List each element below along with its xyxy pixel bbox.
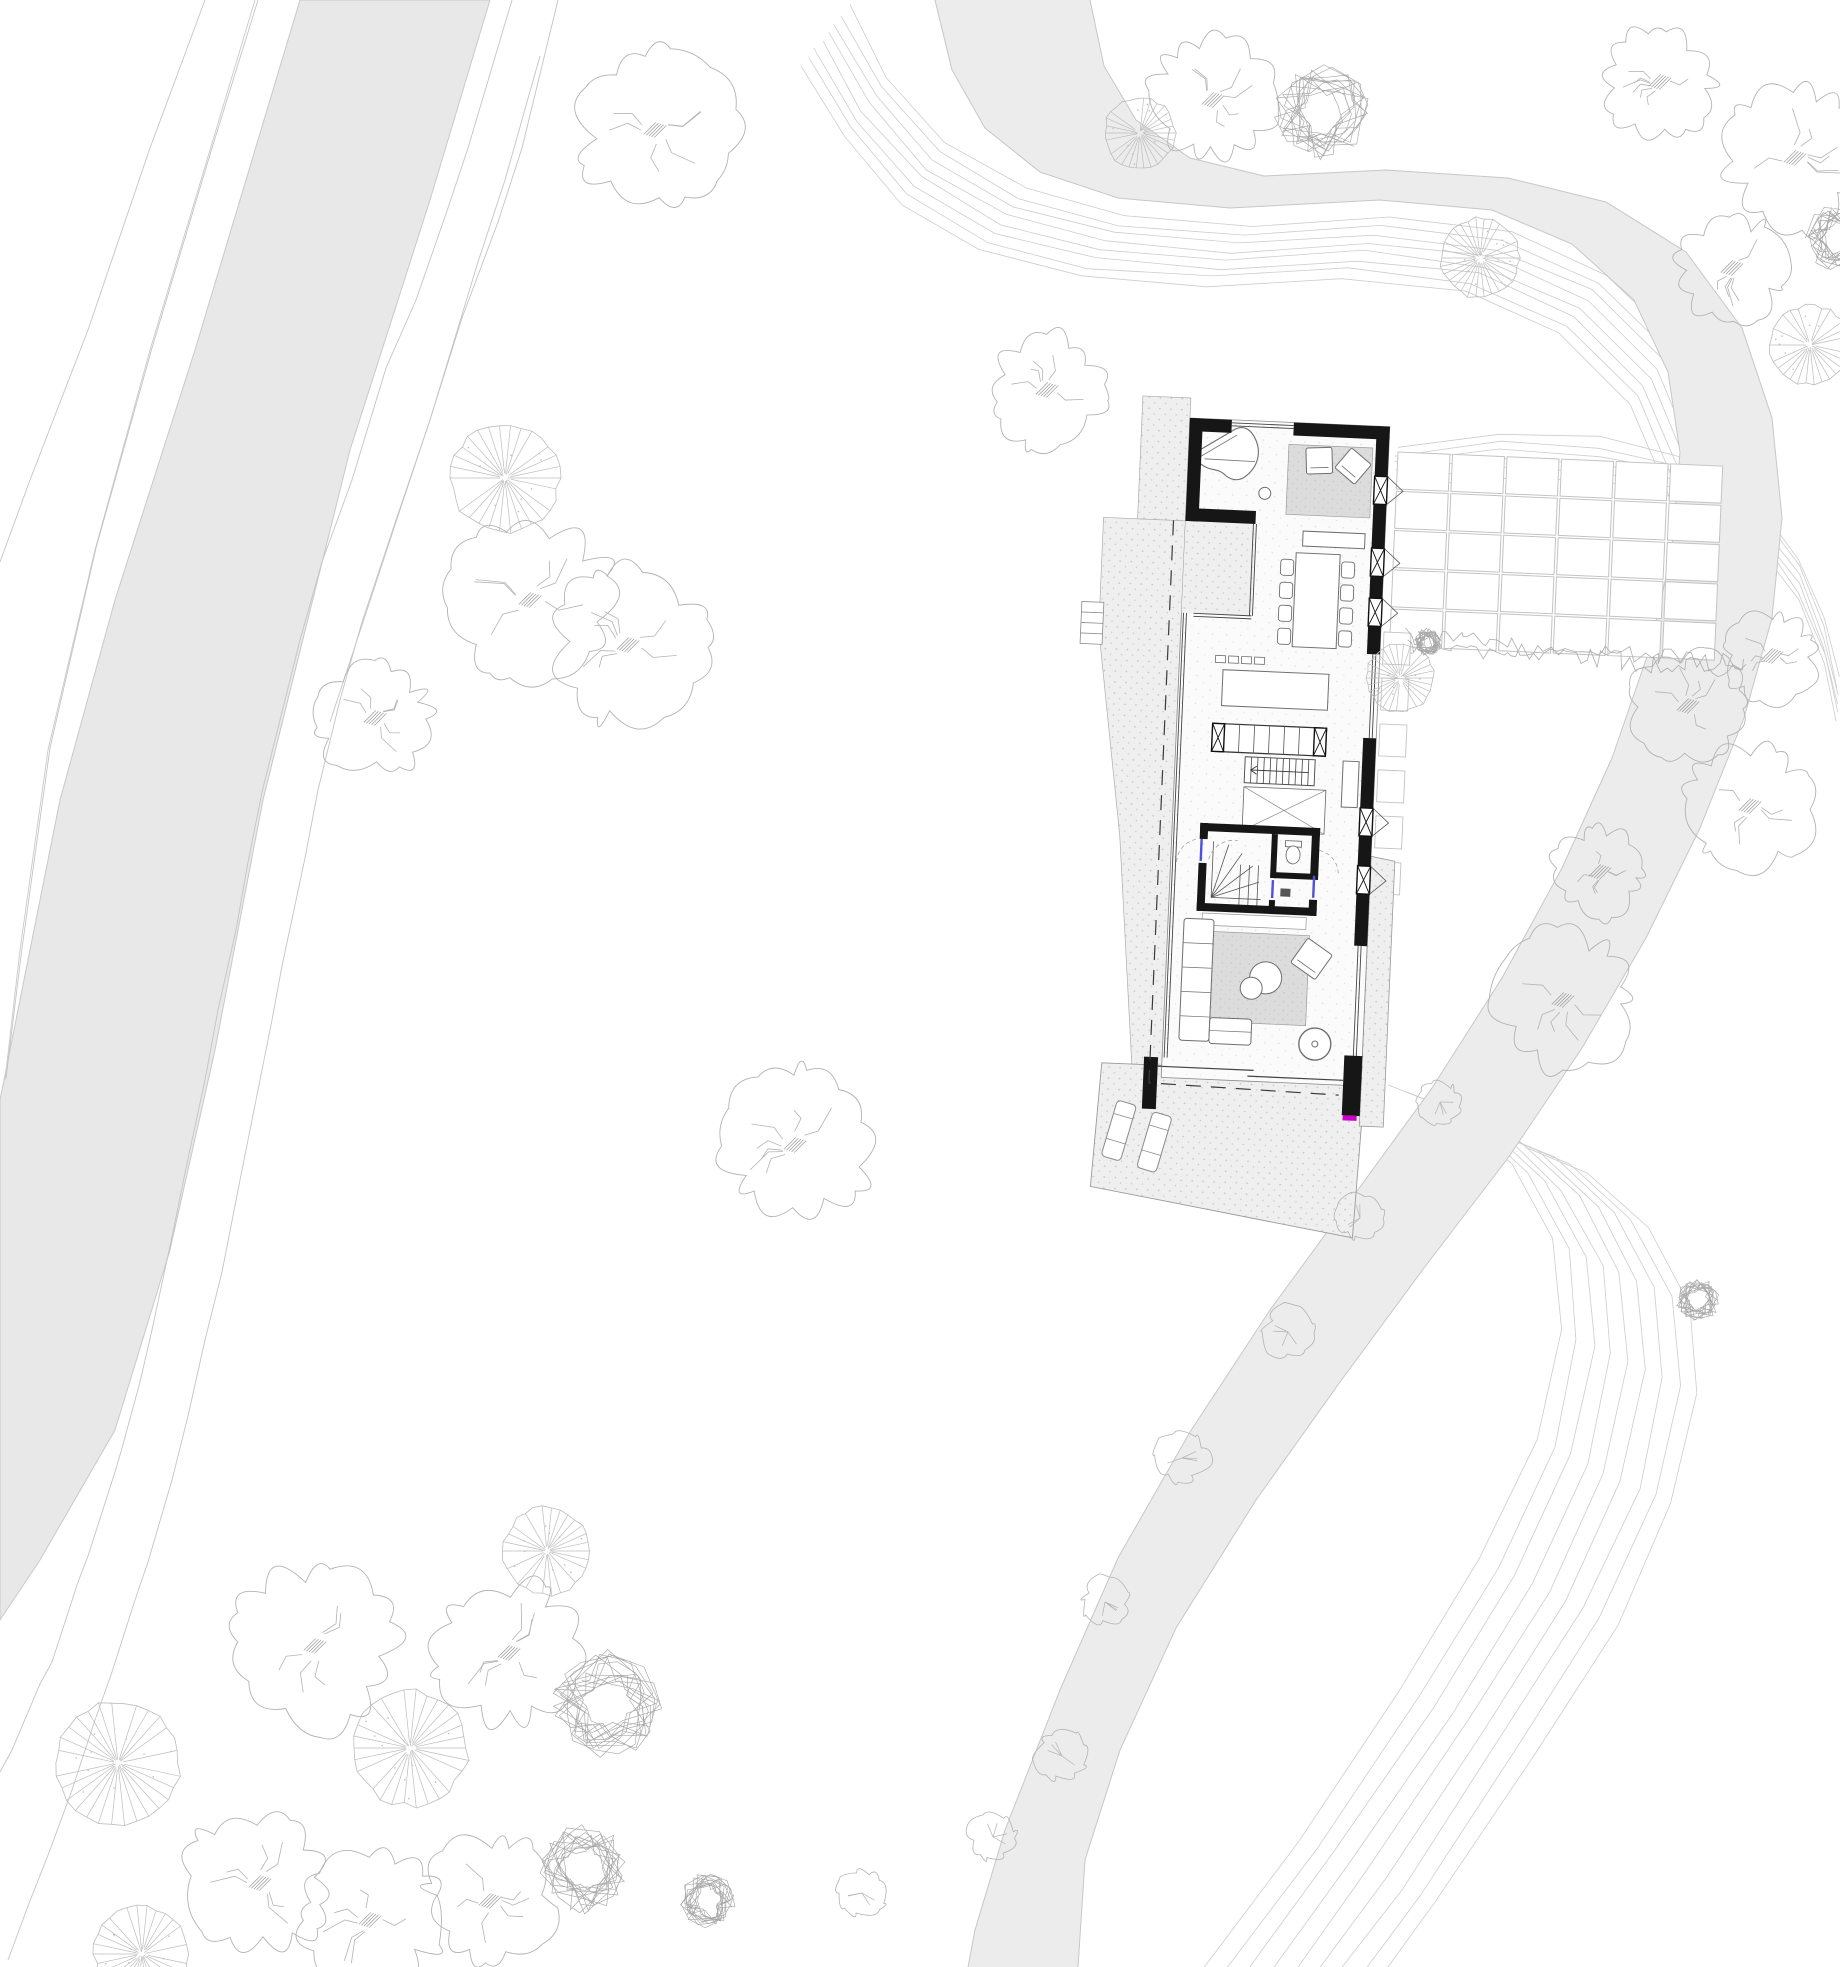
tree-branch [583,651,615,667]
tree-dot [404,1779,406,1781]
tree-dot [1464,259,1466,261]
kitchen-island [1221,670,1328,711]
paver-slab [1449,494,1503,533]
tree-branch [1031,369,1041,382]
tree-small [836,1869,887,1917]
dining-chair [1340,585,1354,602]
tree-canopy [1275,65,1367,158]
tree-dot [494,505,496,507]
paver-slab [1560,459,1614,498]
tree-branch [519,1662,537,1678]
tree-branch [261,1845,268,1870]
tree-trunk-hatch [372,713,384,725]
tree-branch [1049,355,1056,380]
paver-slab [1395,491,1449,530]
paver-slab [1611,540,1665,579]
tree-branch [457,1899,478,1907]
paver-slab [1613,501,1667,540]
tree-dot [1809,324,1811,326]
tree-dot [1165,114,1167,116]
tree-trunk-hatch [1038,383,1050,395]
tree-dot [1148,110,1150,112]
tree-dot [549,1532,551,1534]
tree-shrub [1677,1280,1719,1321]
tree-trunk-hatch [481,1894,493,1906]
tree-branch [1628,71,1650,79]
stove-flue [1312,1041,1318,1047]
tree-trunk-hatch [1210,95,1222,107]
tree-branch [750,1152,783,1170]
tree-trunk-hatch [1747,801,1759,813]
tree-branch [537,561,550,587]
tree-trunk-hatch [1729,263,1741,275]
tree-deciduous [182,1812,329,1953]
bath-partition [1269,900,1275,908]
tree-trunk-hatch [1766,650,1778,662]
tree-shrub [1275,65,1369,160]
paver-slab [1500,575,1554,614]
tree-branch [545,601,583,610]
tree-shrub [681,1874,736,1928]
tree-dot [1414,675,1416,677]
tree-trunk-hatch [1741,799,1753,811]
tree-deciduous [1602,27,1720,140]
tree-branch [334,1909,357,1917]
tree-dot [1503,244,1505,246]
tree-trunk-hatch [257,1878,269,1890]
tree-dot [435,1781,437,1783]
tree-dot [387,1717,389,1719]
tree-branch [267,1894,287,1924]
tree-dot [545,1525,547,1527]
tree-branch [1220,69,1240,92]
tree-dot [1792,369,1794,371]
tree-branch [315,1661,325,1685]
paver-slab [1446,572,1500,611]
tree-trunk-hatch [498,1645,510,1657]
paver-slab [1448,533,1502,572]
tree-trunk-hatch [627,641,639,653]
tree-deciduous [296,1848,443,1967]
bath-wall [1200,823,1209,839]
tree-dot [94,1733,96,1735]
tree-trunk-hatch [1654,76,1666,88]
tree-branch [540,559,567,589]
tree-dot [374,1735,376,1737]
tree-canopy [428,1576,586,1730]
wall-east [1367,626,1381,655]
tree-branch [383,699,397,711]
tree-trunk-hatch [1651,75,1663,87]
tree-dot [559,1537,561,1539]
tree-branch [1640,88,1652,97]
tree-branch [210,1876,247,1883]
tree-trunk-hatch [1731,264,1743,276]
tree-dot [1509,261,1511,263]
tree-branch [1011,382,1036,389]
tree-trunk-hatch [529,596,541,608]
tree-branch [1223,105,1239,115]
tree-trunk-hatch [1792,153,1804,165]
tree-dot [1805,316,1807,318]
tree-trunk-hatch [1659,78,1671,90]
tree-deciduous [428,1576,586,1730]
tree-branch [987,1824,993,1837]
tree-dot [91,1751,93,1753]
tree-dot [538,453,540,455]
tree-branch [599,654,617,668]
tree-dot [143,1753,145,1755]
dining-chair [1341,562,1355,579]
tree-branch [751,1124,782,1139]
tree-trunk-hatch [304,1638,316,1650]
tree-trunk-hatch [312,1641,324,1653]
tree-trunk-hatch [1769,651,1781,663]
dining-chair [1277,628,1291,645]
tree-deciduous [992,327,1109,453]
tree-dot [520,498,522,500]
tree-branch [502,1898,529,1905]
paver-slab [1555,577,1609,616]
tree-deciduous [575,42,746,208]
tree-dot [75,1757,77,1759]
tree-canopy [1679,1280,1719,1321]
tree-branch [609,123,641,130]
tree-trunk-hatch [1744,800,1756,812]
building-layer [1055,394,1415,1239]
tree-trunk-hatch [506,1648,518,1660]
tree-trunk-hatch [309,1640,321,1652]
tree-dot [1127,145,1129,147]
tree-branch [360,1890,368,1908]
tree-dot [1475,283,1477,285]
paver-slab [1609,579,1663,618]
tree-trunk-hatch [625,640,637,652]
wall-east [1375,426,1390,477]
tree-dot [105,1963,107,1965]
tree-branch [1739,239,1758,260]
tree-branch [1807,162,1840,173]
tree-dot [412,1765,414,1767]
tree-deciduous [313,658,437,772]
paver-slab [1502,535,1556,574]
tree-dot [1154,141,1156,143]
tree-dot [113,1787,115,1789]
tree-dot [128,1962,130,1964]
tree-dot [1781,335,1783,337]
tree-trunk-hatch [521,593,533,605]
tree-dot [540,459,542,461]
tree-trunk-hatch [646,123,658,135]
tree-dot [87,1770,89,1772]
tree-trunk-hatch [1721,260,1733,272]
tree-dot [1496,243,1498,245]
paver-slab [1451,454,1505,493]
tree-spokes [56,1703,180,1826]
terrace-apron [1089,1063,1366,1239]
tree-trunk-hatch [251,1876,263,1888]
tree-branch [1223,85,1252,97]
tree-dot [1497,261,1499,263]
tree-canopy [1602,27,1720,140]
tree-dot [82,1791,84,1793]
tree-trunk-hatch [1041,384,1053,396]
hob-burner [1228,656,1238,663]
tree-trunk-hatch [1207,94,1219,106]
tree-dot [468,447,470,449]
tree-branch [466,1864,484,1891]
tree-dot [1487,231,1489,233]
tree-spokes [93,1905,187,1967]
tree-shrub [553,1650,661,1758]
tree-dot [1392,693,1394,695]
paver-slab [1379,724,1407,757]
tree-dot [531,488,533,490]
paver-slab [1377,770,1405,803]
tree-trunk-hatch [259,1879,271,1891]
tree-branch [361,689,371,709]
tree-trunk-hatch [617,637,629,649]
paver-slab [1557,538,1611,577]
tree-dot [552,1569,554,1571]
river-layer [0,0,558,1960]
tree-dot [114,1934,116,1936]
paver-slab [1375,816,1403,849]
door-marker [1313,876,1314,898]
tree-canopy [553,1654,660,1758]
dining-chair [1338,631,1352,648]
tree-trunk-hatch [361,1913,373,1925]
house [1055,394,1415,1239]
tree-canopy [1440,217,1520,298]
tree-trunk-hatch [369,712,381,724]
tree-dot [170,1751,172,1753]
tree-dot [1377,690,1379,692]
tree-branch [1739,817,1747,844]
porch-floor [1181,521,1255,616]
tree-trunk-hatch [1036,382,1048,394]
tree-dot [365,1720,367,1722]
tree-branch [1807,162,1838,171]
tree-deciduous [553,559,714,729]
site-plan-canvas [0,0,1840,1967]
paver-slab [1608,619,1662,658]
tree-dot [518,511,520,513]
hob-burner [1241,656,1251,663]
tree-canopy [296,1848,443,1967]
paver-slab [1505,457,1559,496]
tree-dot [1502,239,1504,241]
tree-trunk-hatch [1204,93,1216,105]
tree-canopy [836,1869,887,1917]
tree-branch [323,1920,358,1932]
tree-dot [524,1551,526,1553]
paver-slab [1667,503,1721,542]
shower-sink [1280,888,1290,896]
paver-slab [1558,498,1612,537]
tree-branch [343,699,366,712]
tree-branch [322,1606,337,1633]
paver-slab [1391,570,1445,609]
tree-trunk-hatch [644,122,656,134]
tree-conifer [503,1506,590,1596]
tree-dot [1784,352,1786,354]
wall-east [1369,576,1383,599]
river [0,0,490,1620]
dining-chair [1279,582,1293,599]
tree-canopy [56,1703,181,1826]
tree-branch [384,723,400,733]
tree-canopy [553,1650,661,1754]
tree-branch [501,1906,524,1917]
tree-trunk-hatch [359,1912,371,1924]
tree-branch [501,1891,521,1899]
architectural-site-plan [0,0,1840,1967]
tree-trunk-hatch [794,1141,806,1153]
terrace-north [1138,396,1191,521]
tree-canopy [443,520,620,687]
tree-deciduous [716,1061,876,1219]
tree-dot [381,1745,383,1747]
tree-trunk-hatch [508,1649,520,1661]
tree-branch [1719,790,1740,801]
tree-trunk-hatch [487,1896,499,1908]
tree-shrub [540,1825,625,1914]
tree-canopy [685,1874,734,1925]
tree-trunk-hatch [622,639,634,651]
tree-trunk-hatch [789,1139,801,1151]
paver-slab [1504,496,1558,535]
tree-dot [511,455,513,457]
tree-trunk-hatch [489,1897,501,1909]
tree-trunk-hatch [1649,74,1661,86]
tree-trunk-hatch [366,711,378,723]
tree-branch [651,144,659,172]
tree-dot [1775,338,1777,340]
tree-trunk-hatch [1657,77,1669,89]
tree-canopy [182,1812,329,1953]
tree-branch [1216,110,1224,126]
tree-branch [1754,158,1782,168]
tree-dot [1134,163,1136,165]
tree-dot [1506,242,1508,244]
tree-trunk-hatch [364,1914,376,1926]
paver-slab [1662,621,1716,660]
hob-burner [1254,657,1264,664]
tree-dot [1147,104,1149,106]
tree-dot [1468,270,1470,272]
tree-dot [1393,687,1395,689]
tree-trunk-hatch [1789,152,1801,164]
tree-dot [1387,674,1389,676]
tree-dot [1779,343,1781,345]
armchair [1306,447,1333,474]
tree-branch [1801,129,1812,147]
tree-branch [666,139,695,163]
tree-trunk-hatch [792,1140,804,1152]
paver-slab [1499,614,1553,653]
tree-branch [805,1108,832,1135]
tree-deciduous [443,520,620,687]
tree-dot [514,1565,516,1567]
dining-chair [1339,608,1353,625]
sofa [1179,918,1214,1041]
tree-branch [1780,658,1797,664]
tree-trunk-hatch [254,1877,266,1889]
tree-dot [1379,688,1381,690]
paver-slab [1664,582,1718,621]
tree-trunk-hatch [649,124,661,136]
tree-conifer [93,1905,189,1967]
tree-shrub [1805,207,1840,269]
toilet [1286,846,1301,865]
tree-dot [523,1540,525,1542]
tree-dot [570,1571,572,1573]
tree-trunk-hatch [306,1639,318,1651]
dining-table [1292,553,1340,649]
tree-trunk-hatch [369,1916,381,1928]
dining-chair [1278,605,1292,622]
tree-branch [993,1823,997,1837]
tree-branch [1057,393,1083,400]
tree-branch [794,1110,801,1131]
tree-dot [580,1538,582,1540]
tree-trunk-hatch [1726,262,1738,274]
paver-slab [1393,531,1447,570]
tree-branch [757,1141,781,1149]
tree-conifer [56,1703,181,1826]
tree-canopy [992,327,1109,453]
tree-trunk-hatch [1786,151,1798,163]
tree-branch [642,648,677,658]
tree-trunk-hatch [1202,92,1214,104]
tree-dot [479,465,481,467]
tree-branch [468,1661,498,1684]
tree-trunk-hatch [249,1875,261,1887]
tree-dot [152,1776,154,1778]
tree-dot [1132,153,1134,155]
tree-trunk-hatch [367,1915,379,1927]
tree-branch [668,111,701,126]
tree-branch [766,1155,785,1173]
tree-canopy [229,1564,406,1739]
wall-east [1372,504,1387,549]
tree-dot [1419,678,1421,680]
sideboard [1303,531,1366,549]
tree-trunk-hatch [503,1647,515,1659]
tree-dot [1137,109,1139,111]
tree-trunk-hatch [784,1137,796,1149]
tree-branch [279,1655,302,1671]
tree-trunk-hatch [1749,802,1761,814]
tree-branch [1725,278,1731,297]
tree-canopy [540,1828,624,1914]
tree-branch [474,582,515,595]
hob-burner [1215,655,1225,662]
tree-trunk-hatch [1784,150,1796,162]
tree-conifer [450,426,561,534]
tree-trunk-hatch [786,1138,798,1150]
tree-canopy [93,1905,189,1967]
tree-branch [1808,147,1838,158]
tree-branch [640,621,666,638]
tree-trunk-hatch [1739,798,1751,810]
tree-trunk-hatch [500,1646,512,1658]
tree-branch [491,610,518,634]
pier-southeast [1342,1055,1363,1116]
tree-trunk-hatch [519,592,531,604]
tree-trunk-hatch [1723,261,1735,273]
